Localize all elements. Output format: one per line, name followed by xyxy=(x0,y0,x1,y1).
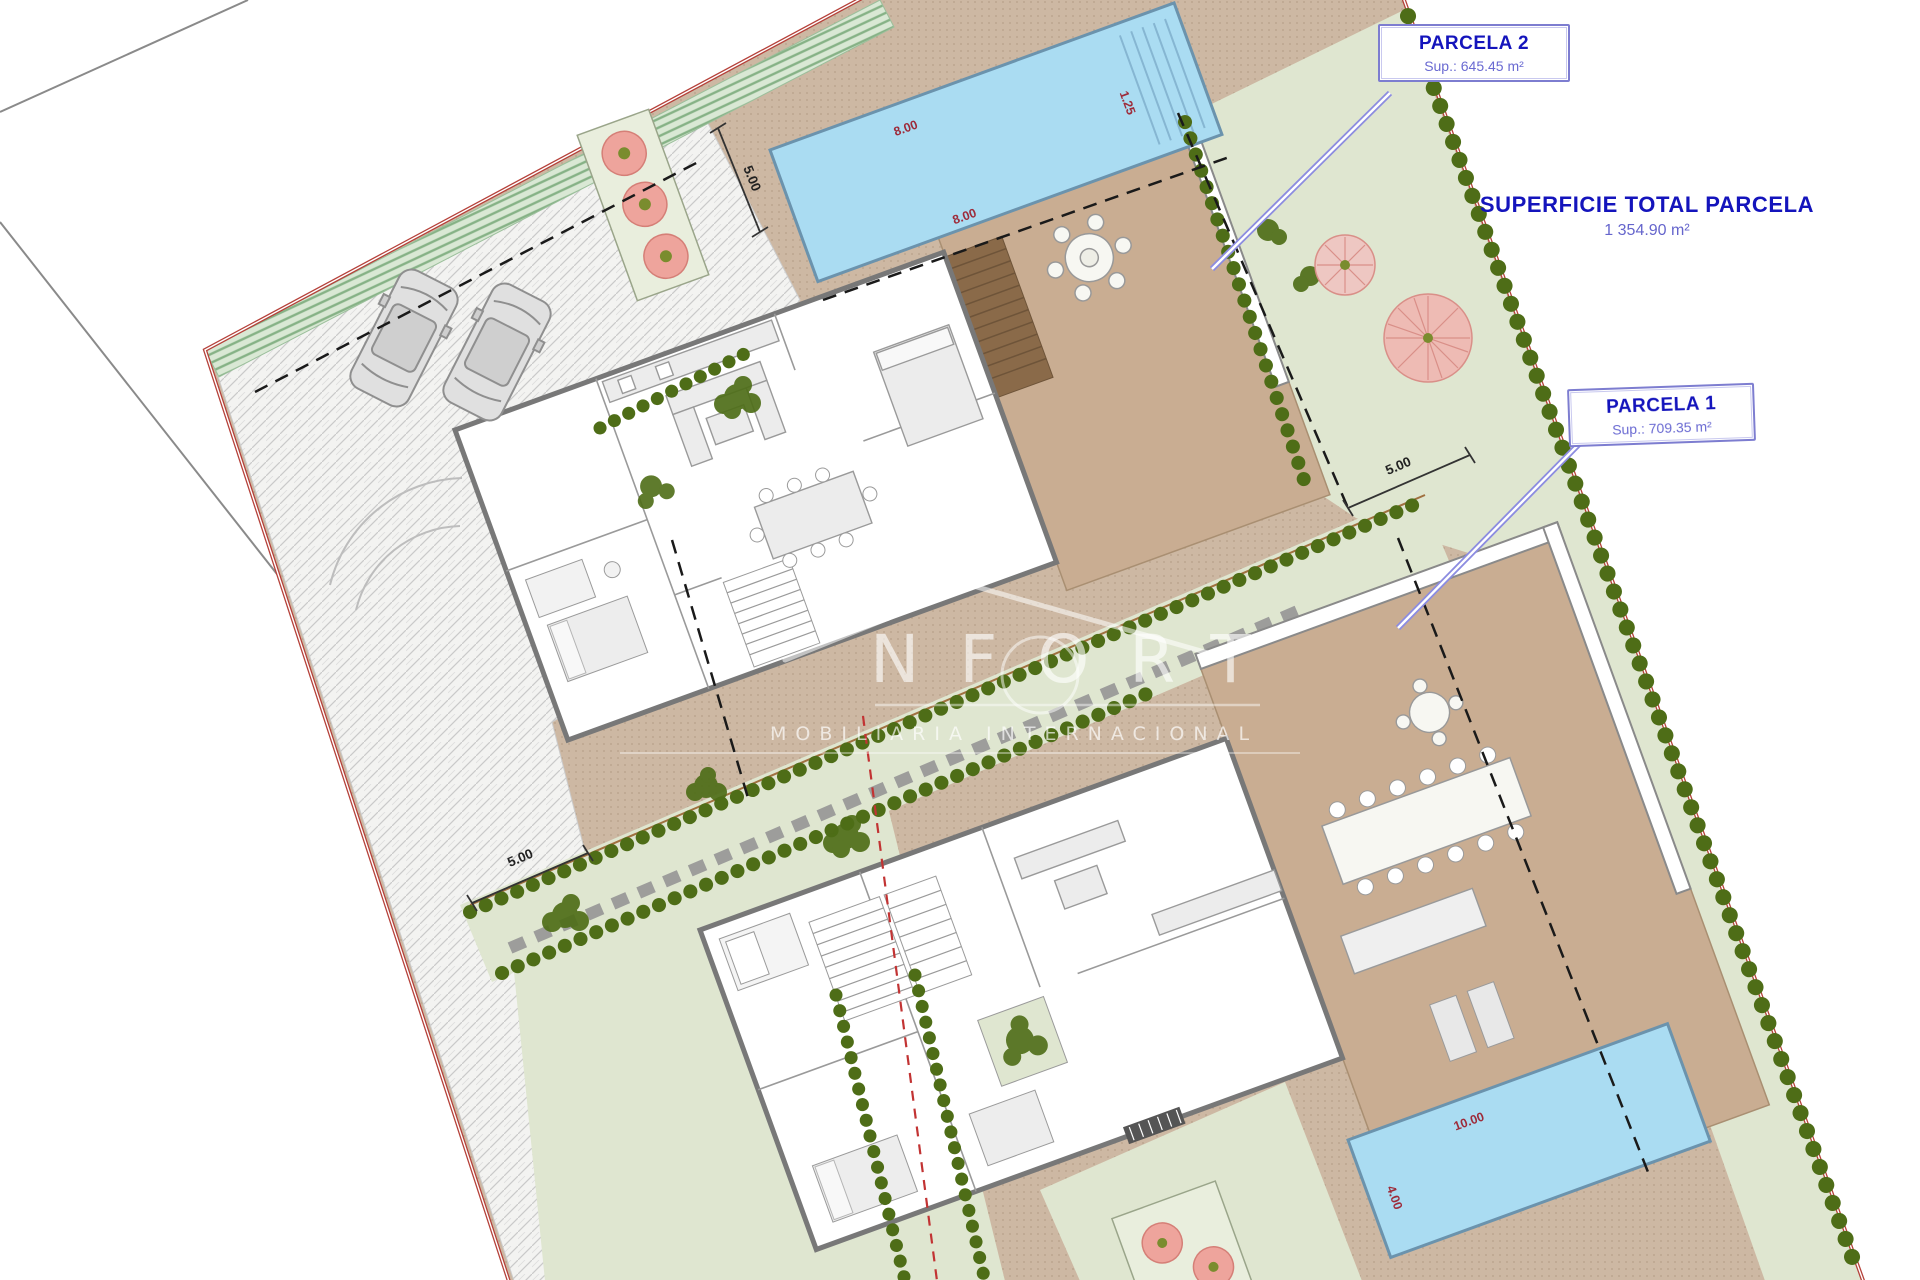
total-area-value: 1 354.90 m² xyxy=(1412,222,1882,240)
parcela1-callout: PARCELA 1 Sup.: 709.35 m² xyxy=(1567,383,1756,447)
parcela2-callout: PARCELA 2 Sup.: 645.45 m² xyxy=(1378,24,1570,82)
parcela2-title: PARCELA 2 xyxy=(1394,33,1554,55)
neighbor-boundary-lines xyxy=(0,0,284,583)
parcela2-area: Sup.: 645.45 m² xyxy=(1394,58,1554,74)
parcela1-title: PARCELA 1 xyxy=(1583,392,1739,419)
site-plan-page: 8.00 8.00 1.25 xyxy=(0,0,1920,1280)
total-area-block: SUPERFICIE TOTAL PARCELA 1 354.90 m² xyxy=(1412,192,1882,240)
total-area-title: SUPERFICIE TOTAL PARCELA xyxy=(1412,192,1882,218)
parcela1-area: Sup.: 709.35 m² xyxy=(1584,417,1739,438)
